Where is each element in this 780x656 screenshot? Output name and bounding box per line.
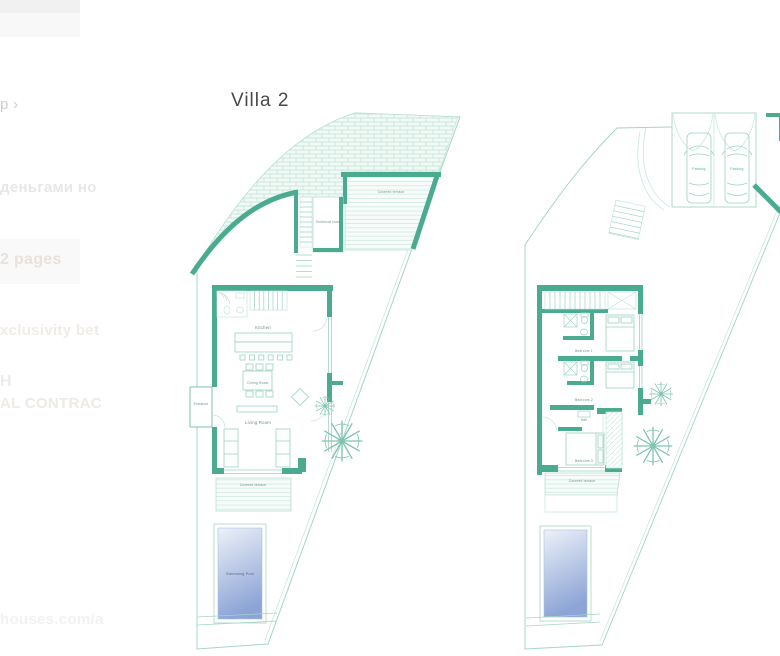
bathroom-1 bbox=[564, 313, 588, 335]
hall-label: Hall bbox=[581, 418, 588, 422]
lower-terrace-label: Covered terrace bbox=[240, 483, 267, 487]
dining-room-label: Dining Room bbox=[247, 381, 268, 385]
parking-label: Parking bbox=[730, 167, 743, 171]
swimming-pool bbox=[544, 530, 587, 617]
palm-tree-icon bbox=[315, 396, 335, 416]
bedroom-2-label: Bedroom 2 bbox=[575, 398, 593, 402]
swimming-pool-label: Swimming Pool bbox=[226, 572, 254, 576]
kitchen-counter bbox=[235, 333, 292, 360]
living-room-label: Living Room bbox=[245, 420, 271, 425]
technical-room-label: Technical room bbox=[316, 220, 341, 224]
exterior-stairs bbox=[609, 200, 645, 239]
kitchen-label: Kitchen bbox=[255, 325, 271, 330]
first-floor-plan: Parking Parking bbox=[525, 113, 780, 649]
parking-label: Parking bbox=[692, 167, 705, 171]
hall-desk bbox=[578, 411, 590, 417]
bedroom-1-label: Bedroom 1 bbox=[575, 349, 593, 353]
bathroom-2 bbox=[564, 361, 588, 382]
page-canvas: p › деньгами но 2 pages xclusivity bet H… bbox=[0, 0, 780, 656]
palm-tree-icon bbox=[322, 421, 363, 462]
terrace-label: Covered terrace bbox=[569, 479, 596, 483]
palm-tree-icon bbox=[634, 427, 672, 465]
stairs bbox=[255, 291, 283, 310]
entrance-label: Entrance bbox=[194, 402, 209, 406]
driveway-wall-vertical bbox=[294, 190, 298, 253]
palm-tree-icon bbox=[649, 382, 673, 406]
boundary-wall bbox=[754, 185, 780, 212]
closet bbox=[606, 412, 622, 468]
sideboard bbox=[237, 406, 277, 412]
floor-plans-svg: Covered terrace Technical room bbox=[0, 0, 780, 656]
terrace bbox=[545, 473, 620, 495]
upper-terrace-label: Covered terrace bbox=[378, 190, 405, 194]
stairs bbox=[550, 292, 600, 309]
entrance-annex bbox=[190, 387, 212, 427]
technical-room bbox=[313, 197, 343, 252]
carport: Parking Parking bbox=[672, 113, 756, 207]
bedroom-3-label: Bedroom 3 bbox=[575, 459, 593, 463]
wc-room bbox=[217, 291, 247, 317]
sofas bbox=[224, 389, 308, 467]
exterior-steps bbox=[296, 255, 312, 277]
ground-floor-plan: Covered terrace Technical room bbox=[190, 113, 460, 649]
bed-2 bbox=[606, 362, 634, 388]
side-stairs bbox=[300, 202, 312, 242]
bed-1 bbox=[606, 315, 634, 351]
